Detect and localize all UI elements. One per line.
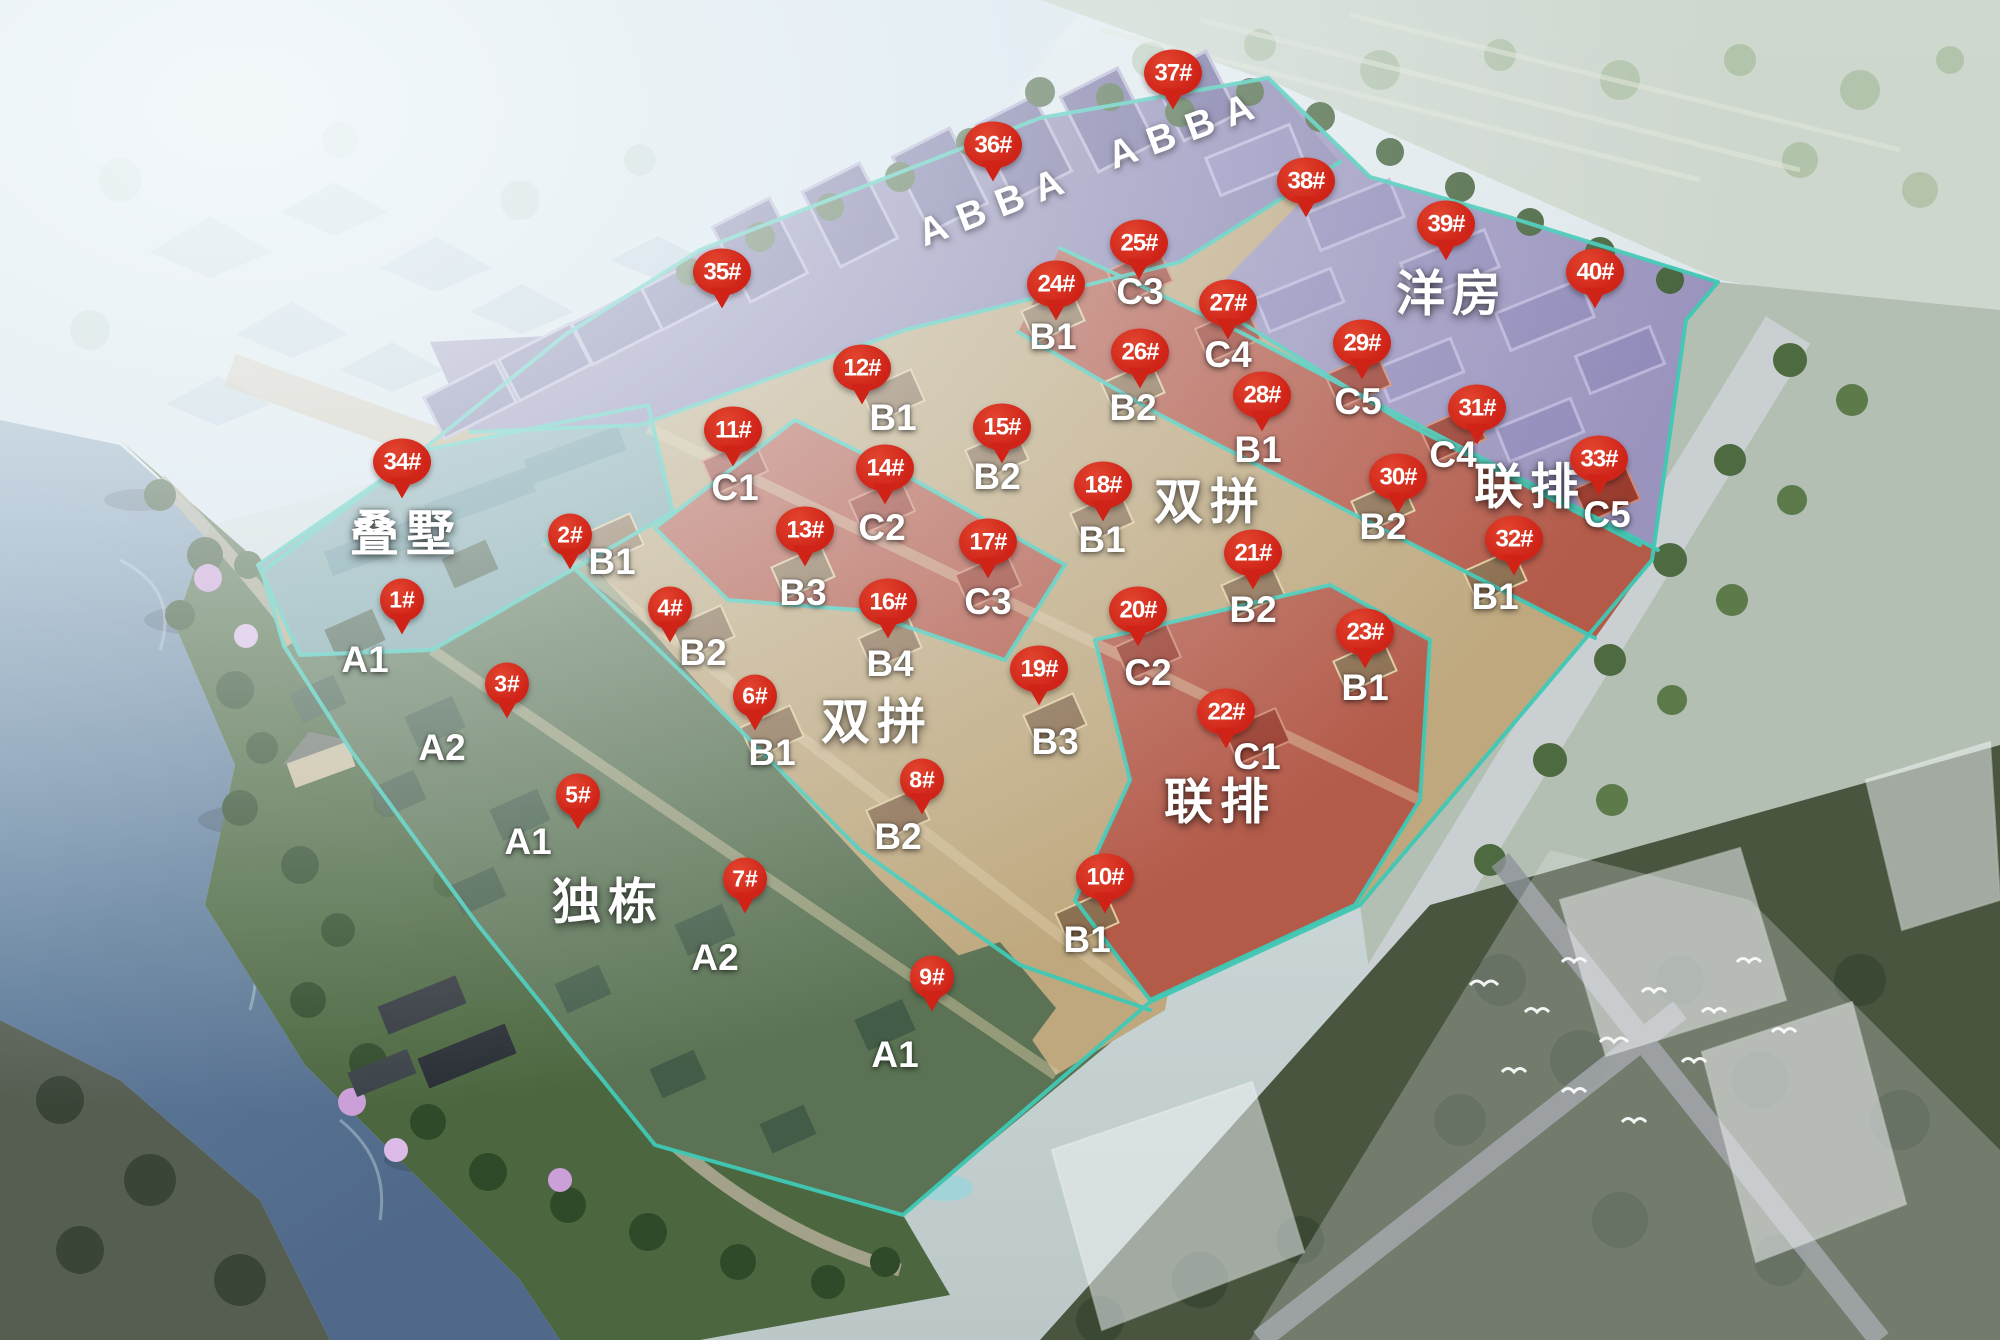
unit-type-label: A2 (418, 727, 465, 769)
unit-type-label: B4 (866, 643, 913, 685)
building-number-pin[interactable]: 23# (1336, 609, 1394, 656)
unit-type-label: C3 (964, 581, 1011, 623)
zone-label: 独栋 (552, 863, 664, 934)
building-number-text: 10# (1086, 863, 1123, 891)
building-number-text: 17# (969, 528, 1006, 556)
unit-type-label: C5 (1583, 494, 1630, 536)
building-number-pin[interactable]: 21# (1224, 530, 1282, 577)
building-number-text: 13# (786, 516, 823, 544)
building-number-pin[interactable]: 8# (900, 759, 944, 802)
building-number-pin[interactable]: 3# (485, 663, 529, 706)
building-number-text: 5# (565, 782, 591, 809)
unit-type-label: B1 (1063, 919, 1110, 961)
building-number-pin[interactable]: 16# (859, 579, 917, 626)
unit-type-label: C4 (1204, 334, 1251, 376)
zone-label: 双拼 (1154, 463, 1266, 534)
unit-type-label: B1 (1078, 519, 1125, 561)
unit-type-label: C1 (711, 467, 758, 509)
unit-type-label: C2 (1124, 652, 1171, 694)
building-number-pin[interactable]: 4# (648, 587, 692, 630)
building-number-pin[interactable]: 25# (1110, 220, 1168, 267)
zone-label: 洋房 (1396, 255, 1508, 326)
building-number-pin[interactable]: 37# (1144, 50, 1202, 97)
building-number-text: 24# (1037, 270, 1074, 298)
building-number-pin[interactable]: 19# (1010, 646, 1068, 693)
building-number-pin[interactable]: 24# (1027, 261, 1085, 308)
building-number-text: 34# (383, 448, 420, 476)
building-number-text: 8# (909, 767, 935, 794)
building-number-text: 25# (1120, 229, 1157, 257)
building-number-pin[interactable]: 35# (693, 249, 751, 296)
building-number-pin[interactable]: 2# (548, 514, 592, 557)
building-number-pin[interactable]: 29# (1333, 320, 1391, 367)
building-number-text: 9# (919, 964, 945, 991)
building-number-pin[interactable]: 31# (1448, 385, 1506, 432)
unit-type-label: B1 (1471, 576, 1518, 618)
building-number-pin[interactable]: 18# (1074, 462, 1132, 509)
building-number-text: 26# (1121, 338, 1158, 366)
unit-type-label: B1 (1341, 667, 1388, 709)
building-number-text: 7# (732, 866, 758, 893)
building-number-text: 12# (843, 354, 880, 382)
building-number-pin[interactable]: 7# (723, 858, 767, 901)
building-number-text: 1# (389, 587, 415, 614)
building-number-text: 29# (1343, 329, 1380, 357)
building-number-text: 4# (657, 595, 683, 622)
building-number-text: 30# (1379, 463, 1416, 491)
unit-type-label: B1 (869, 397, 916, 439)
building-number-pin[interactable]: 20# (1109, 587, 1167, 634)
unit-type-label: A1 (871, 1034, 918, 1076)
building-number-pin[interactable]: 17# (959, 519, 1017, 566)
building-number-pin[interactable]: 28# (1233, 372, 1291, 419)
building-number-pin[interactable]: 5# (556, 774, 600, 817)
building-number-text: 33# (1580, 445, 1617, 473)
building-number-pin[interactable]: 38# (1277, 158, 1335, 205)
unit-type-label: B2 (874, 816, 921, 858)
building-number-text: 23# (1346, 618, 1383, 646)
building-number-text: 31# (1458, 394, 1495, 422)
building-number-text: 19# (1020, 655, 1057, 683)
building-number-pin[interactable]: 9# (910, 956, 954, 999)
building-number-text: 35# (703, 258, 740, 286)
building-number-text: 3# (494, 671, 520, 698)
building-number-pin[interactable]: 13# (776, 507, 834, 554)
unit-type-label: B1 (748, 732, 795, 774)
building-number-pin[interactable]: 40# (1566, 249, 1624, 296)
building-number-text: 11# (715, 416, 751, 444)
building-number-text: 21# (1234, 539, 1271, 567)
masterplan-scene: 叠墅独栋双拼双拼联排联排洋房 ABBAABBA A1A2A1A2A1B1B2B1… (0, 0, 2000, 1340)
building-number-text: 38# (1287, 167, 1324, 195)
building-number-pin[interactable]: 39# (1417, 201, 1475, 248)
building-number-pin[interactable]: 34# (373, 439, 431, 486)
building-number-pin[interactable]: 15# (973, 404, 1031, 451)
building-number-pin[interactable]: 14# (856, 445, 914, 492)
building-number-text: 16# (869, 588, 906, 616)
building-number-text: 2# (557, 522, 583, 549)
unit-type-label: A1 (504, 821, 551, 863)
unit-type-label: B1 (588, 541, 635, 583)
unit-type-label: B1 (1029, 316, 1076, 358)
building-number-text: 6# (742, 683, 768, 710)
building-number-text: 27# (1209, 289, 1246, 317)
unit-type-label: B3 (779, 572, 826, 614)
unit-type-label: B2 (1229, 589, 1276, 631)
zone-label: 叠墅 (350, 495, 462, 566)
building-number-pin[interactable]: 26# (1111, 329, 1169, 376)
building-number-text: 39# (1427, 210, 1464, 238)
building-number-text: 32# (1495, 525, 1532, 553)
unit-type-label: C2 (858, 507, 905, 549)
zone-label: 联排 (1164, 763, 1276, 834)
building-number-pin[interactable]: 36# (964, 122, 1022, 169)
building-number-text: 20# (1119, 596, 1156, 624)
unit-type-label: A1 (341, 639, 388, 681)
building-number-text: 18# (1084, 471, 1121, 499)
building-number-pin[interactable]: 30# (1369, 454, 1427, 501)
unit-type-label: A2 (691, 937, 738, 979)
building-number-text: 15# (983, 413, 1020, 441)
building-number-pin[interactable]: 33# (1570, 436, 1628, 483)
building-number-pin[interactable]: 27# (1199, 280, 1257, 327)
building-number-pin[interactable]: 10# (1076, 854, 1134, 901)
building-number-text: 28# (1243, 381, 1280, 409)
building-number-pin[interactable]: 12# (833, 345, 891, 392)
building-number-text: 40# (1576, 258, 1613, 286)
building-number-pin[interactable]: 22# (1197, 689, 1255, 736)
building-number-text: 37# (1154, 59, 1191, 87)
building-number-pin[interactable]: 1# (380, 579, 424, 622)
unit-type-label: C5 (1334, 381, 1381, 423)
unit-type-label: B2 (679, 632, 726, 674)
unit-type-label: B3 (1031, 721, 1078, 763)
building-number-pin[interactable]: 11# (704, 407, 762, 454)
building-number-text: 22# (1207, 698, 1244, 726)
building-number-pin[interactable]: 6# (733, 675, 777, 718)
zone-label: 双拼 (821, 683, 933, 754)
building-number-text: 14# (866, 454, 903, 482)
building-number-text: 36# (974, 131, 1011, 159)
unit-type-label: B2 (1109, 387, 1156, 429)
building-number-pin[interactable]: 32# (1485, 516, 1543, 563)
